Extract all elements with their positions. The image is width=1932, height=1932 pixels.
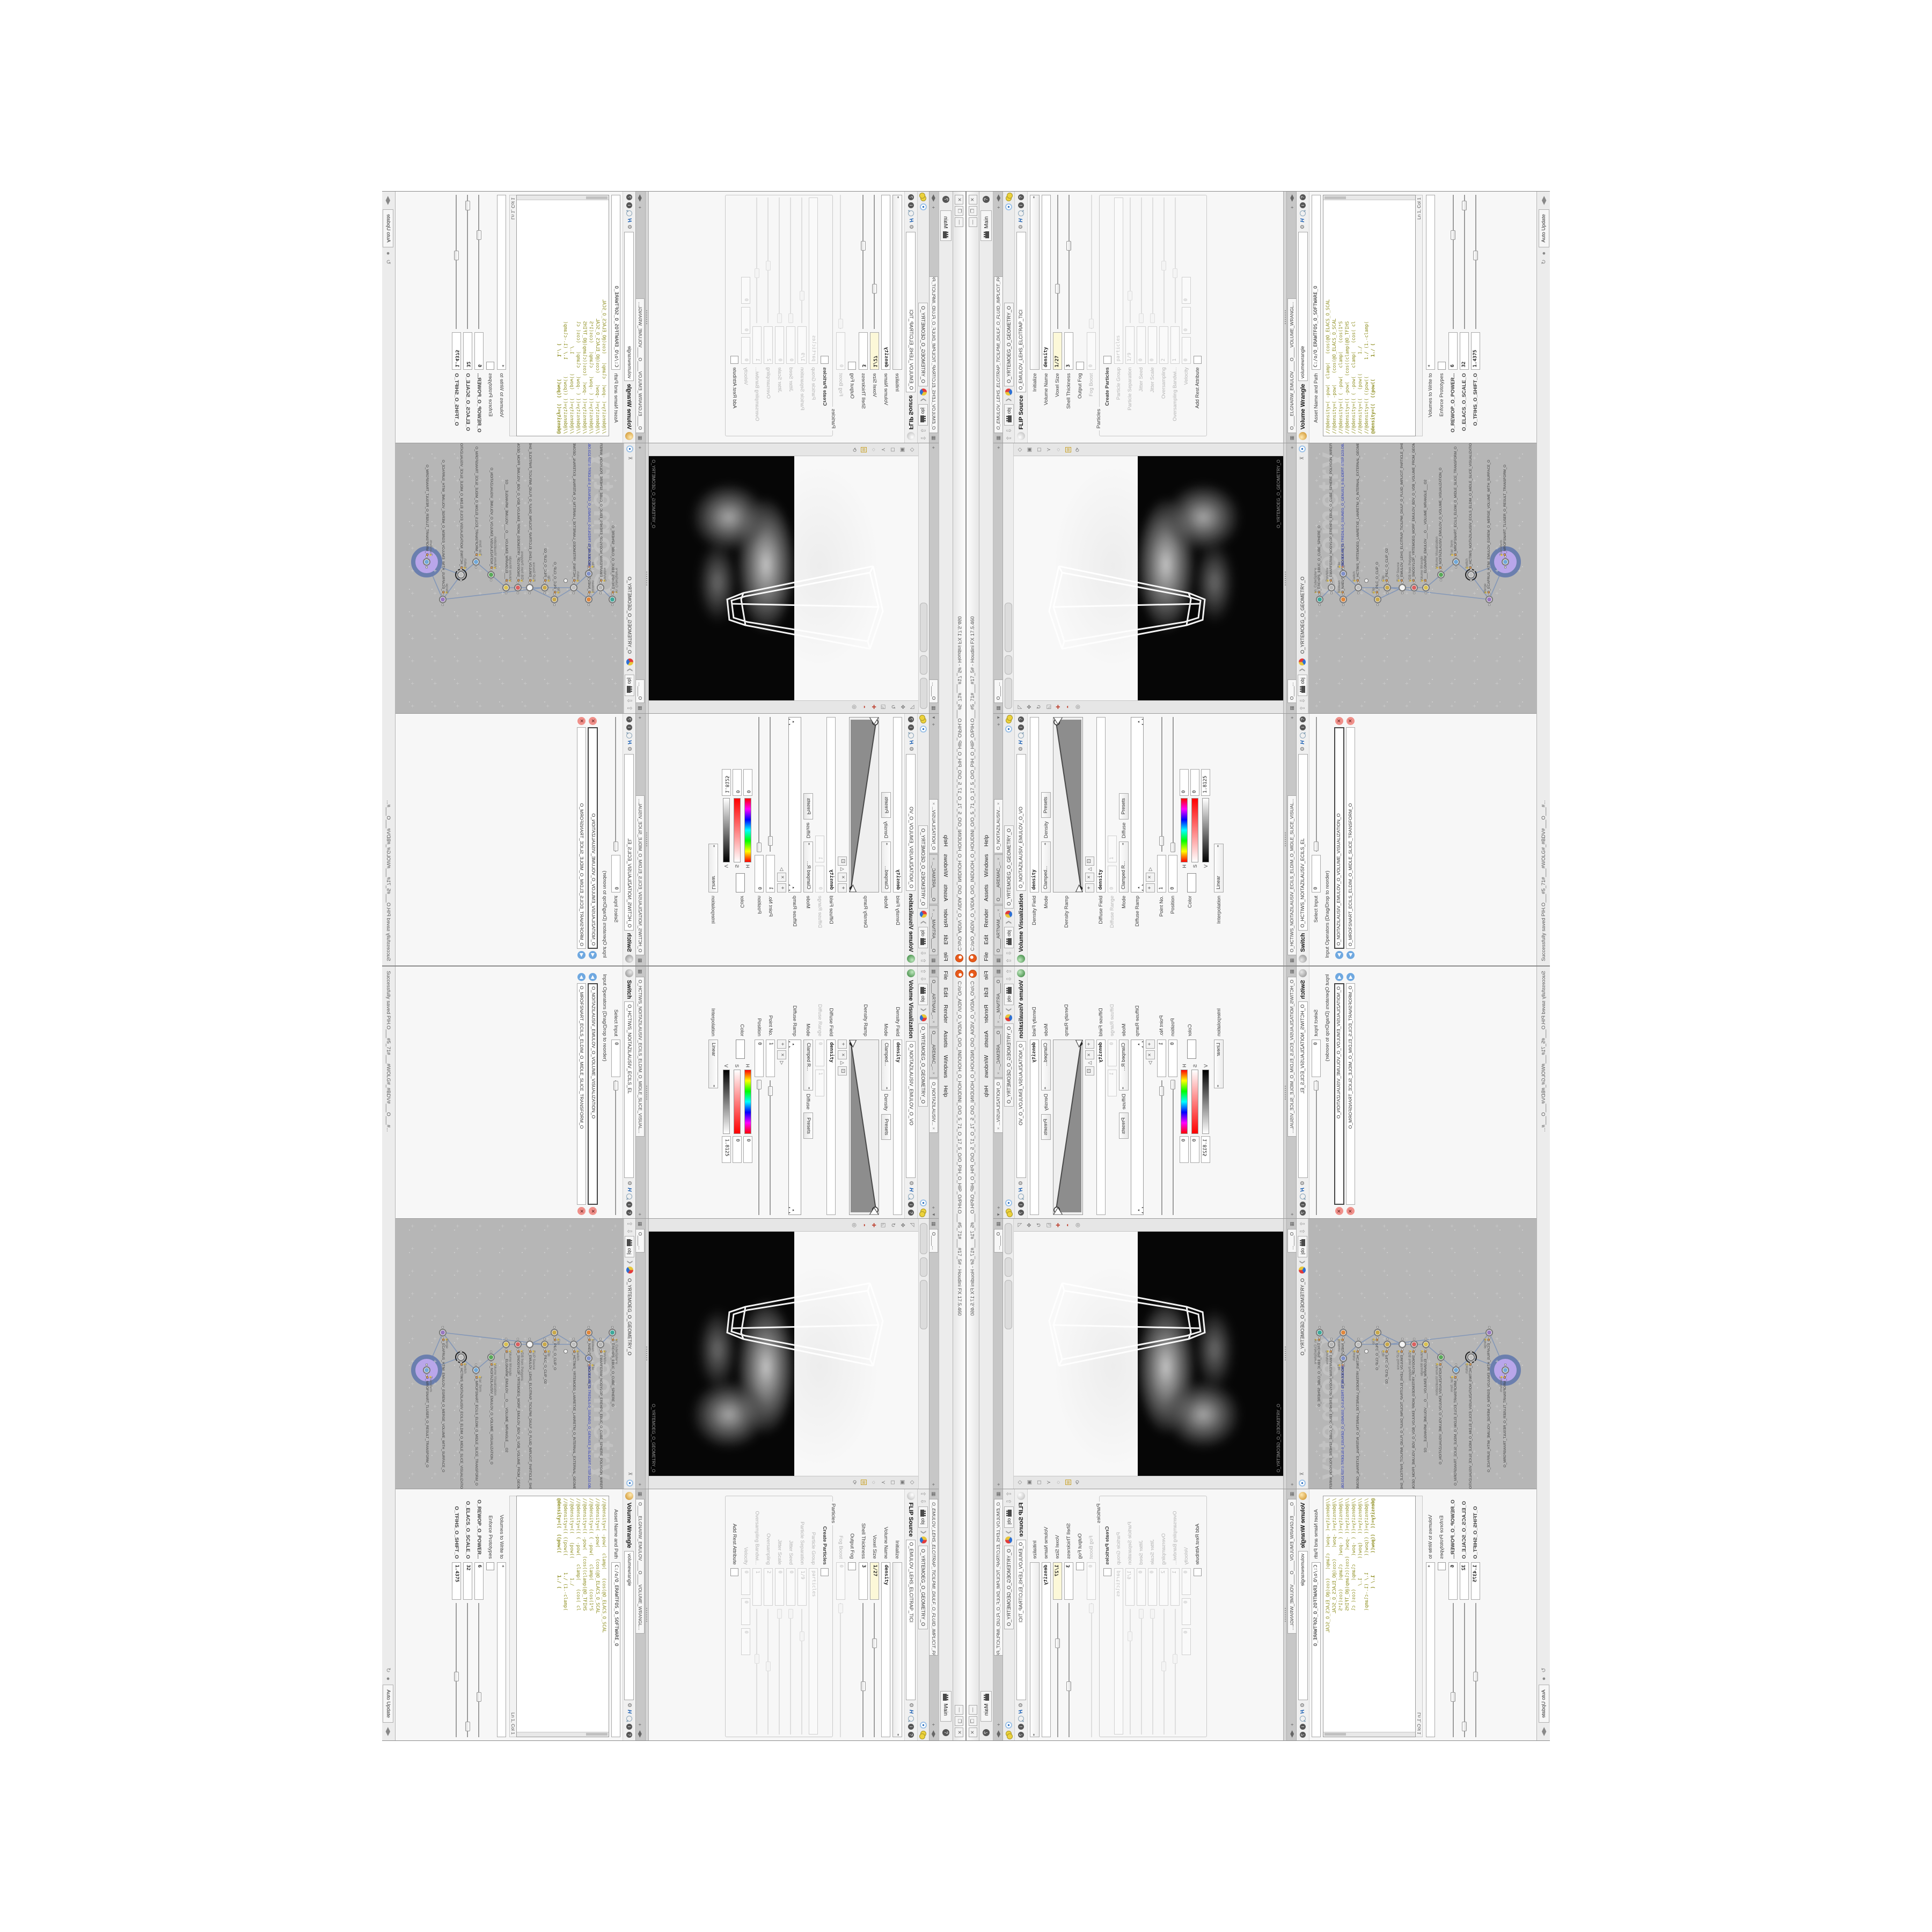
help-icon[interactable]: ? [626, 716, 632, 722]
nav-down-icon[interactable]: ⇩ [1005, 950, 1013, 956]
position-input[interactable]: 0 [1168, 855, 1177, 892]
scale-input[interactable]: 32 [1460, 332, 1469, 370]
delete-row-icon[interactable]: ✕ [577, 717, 586, 725]
diffuse-ramp-add-button[interactable]: + [777, 1040, 786, 1049]
info-icon[interactable]: i [908, 724, 914, 730]
move-tool-icon[interactable]: ✥ [899, 1223, 905, 1227]
hue-input[interactable]: 0 [743, 769, 752, 796]
pane-pin-icon[interactable]: + [930, 204, 938, 210]
diffuse-mode-dropdown[interactable]: Clamped R... [1119, 841, 1129, 892]
shell-thickness-slider[interactable] [861, 1603, 866, 1737]
scale-tool-icon[interactable]: ◱ [880, 704, 886, 709]
pane-split-icon[interactable]: ▦ [994, 1490, 1002, 1498]
help-badge-icon[interactable]: ? [983, 1729, 990, 1736]
flip-name-field[interactable]: O_EMULOV_LEHS_ELCITRAP_TICI [1016, 232, 1026, 392]
input-operator-field[interactable]: O_NOITAZILAUSIV_EMULOV_O_VOLUME_VISUALIZ… [588, 727, 598, 949]
help-icon[interactable]: ? [908, 1210, 914, 1216]
switch-name-field[interactable]: O_HCTIWS_NOITAZILAUSIV_ECILS_EL [1298, 754, 1308, 931]
window-titlebar[interactable]: C:/o/O_AIDIV_O_VIDIA_O/O_INIDUOH_O_HOUDI… [953, 967, 965, 1740]
network-path-chip[interactable]: O_YRTEMOEG_O_GEOMETRY_O [1298, 1276, 1307, 1358]
interpolation-dropdown[interactable]: Linear [708, 1040, 718, 1088]
network-node-transform[interactable]: TransformO_MROFSNART_ECILS_ELDIM_O_MIDLE… [1452, 1366, 1460, 1374]
diffuse-range-max[interactable]: 1 [815, 1070, 824, 1096]
node-flag-left[interactable] [1470, 579, 1472, 581]
network-path-chip[interactable]: O_YRTEMOEG_O_GEOMETRY_O [626, 1276, 634, 1358]
pane-pin-icon[interactable]: + [1288, 204, 1296, 210]
info-icon[interactable]: i [1300, 202, 1306, 208]
position-input[interactable]: 0 [1168, 1040, 1177, 1077]
follow-selection-icon[interactable] [1299, 1480, 1306, 1487]
node-flag-left[interactable] [553, 1326, 555, 1328]
density-field-input[interactable]: density [1030, 1040, 1039, 1215]
pane-split-icon[interactable]: ▦ [930, 704, 938, 712]
shift-input[interactable]: 1.4375 [1471, 1562, 1480, 1600]
node-flag-left[interactable] [1319, 1326, 1321, 1328]
pane-tab-arrows[interactable]: ◀▶ [930, 1729, 938, 1739]
diffuse-range-min[interactable]: 0 [815, 1040, 824, 1066]
minimize-button[interactable]: — [955, 1705, 964, 1715]
pane-splitter[interactable] [1283, 714, 1287, 965]
pane-splitter[interactable] [645, 192, 649, 443]
pane-tab-arrows[interactable]: ◀▶ [994, 193, 1002, 203]
point-no-slider[interactable] [768, 1080, 773, 1215]
select-input-field[interactable]: 0 [1312, 855, 1321, 892]
interpolation-dropdown[interactable]: Linear [1214, 844, 1224, 892]
diffuse-range-max[interactable]: 1 [1108, 836, 1117, 862]
hue-slider[interactable] [744, 1070, 751, 1134]
node-flag-left[interactable] [1413, 1338, 1415, 1340]
ramp-add-point-button[interactable]: + [1085, 883, 1094, 892]
density-ramp-editor[interactable] [1053, 717, 1083, 892]
hue-slider[interactable] [744, 798, 751, 862]
frame-icon[interactable]: ◻ [1036, 1480, 1042, 1484]
gear-icon[interactable]: ⚙ [1300, 1703, 1306, 1708]
wrangle-name-field[interactable]: volumewrangle [1298, 232, 1308, 381]
switch-name-field[interactable]: O_HCTIWS_NOITAZILAUSIV_ECILS_EL [625, 754, 634, 931]
menu-help[interactable]: Help [943, 835, 949, 847]
tab-scroll-arrows[interactable]: ◀▶ [385, 196, 392, 205]
gear-icon[interactable]: ⚙ [908, 1181, 914, 1185]
menu-help[interactable]: Help [943, 1086, 949, 1097]
viz-name-field[interactable]: O_NOITAZILAUSIV_EMULOV_O_VO [1016, 1041, 1026, 1178]
particle-group-input[interactable]: particles [1114, 1568, 1123, 1735]
network-canvas[interactable]: Geometry an_CubeSphereO_EREHPS_EBUC_O_CU… [1308, 1219, 1536, 1488]
code-scrollbar[interactable] [517, 1732, 609, 1737]
output-fog-checkbox[interactable] [1076, 362, 1084, 370]
network-node-transform[interactable]: TransformO_MROFSNART_TLUSER_O_RESULT_TRA… [423, 1366, 430, 1374]
rotate-tool-icon[interactable]: ↻ [890, 705, 896, 709]
particle-separation-input[interactable]: 1/9 [797, 326, 807, 364]
pane-pin-icon[interactable]: + [636, 1481, 644, 1487]
nav-down-icon[interactable]: ⇩ [1005, 428, 1013, 433]
node-flag-left[interactable] [426, 566, 428, 568]
shift-slider[interactable] [454, 195, 459, 329]
density-ramp-editor[interactable] [849, 1040, 879, 1215]
hue-input[interactable]: 0 [1180, 769, 1189, 796]
houdini-h-icon[interactable]: H [1018, 218, 1024, 222]
network-node-volume-visualization[interactable]: Volume VisualizationO_NOITAZILAUSIV_EMUL… [1437, 1353, 1445, 1361]
node-flag-left[interactable] [1440, 579, 1442, 581]
info-icon[interactable]: i [626, 1202, 632, 1207]
node-flag-left[interactable] [588, 604, 590, 606]
add-rest-checkbox[interactable] [1194, 1568, 1202, 1576]
ramp-handle-right[interactable] [789, 719, 794, 725]
node-flag-left[interactable] [553, 604, 555, 606]
geometry-path-chip[interactable]: O_YRTEMOEG_O_GEOMETRY_O [919, 303, 928, 386]
nav-up-icon[interactable]: ⇧ [1005, 958, 1013, 963]
sat-input[interactable]: 0 [1190, 1136, 1199, 1163]
shell-thickness-slider[interactable] [861, 195, 866, 329]
nav-up-icon[interactable]: ⇧ [1299, 706, 1306, 711]
select-input-slider[interactable] [613, 717, 618, 852]
scale-tool-icon[interactable]: ◱ [880, 1223, 886, 1227]
pane-pin-icon[interactable]: + [636, 1722, 644, 1728]
nav-up-icon[interactable]: ⇧ [920, 958, 927, 963]
initialize-dropdown[interactable] [1030, 1562, 1040, 1737]
network-path-chip[interactable]: O_YRTEMOEG_O_GEOMETRY_O [1298, 574, 1307, 656]
pane-tab-arrows[interactable]: ◀▶ [1288, 1729, 1296, 1739]
node-flag-left[interactable] [1455, 566, 1457, 568]
node-flag-left[interactable] [517, 1338, 519, 1340]
network-node-polywire[interactable]: PolyWireO_EMARFERIW_NOGYLOP_EREHPS_EBUC_… [597, 1341, 604, 1348]
network-node-clip[interactable]: ClipO_PILC_O_CLIP_O2 [1384, 584, 1391, 591]
pane-split-icon[interactable]: ▦ [1288, 956, 1296, 964]
ramp-add-point-button[interactable]: + [838, 1040, 847, 1049]
voxel-size-input[interactable]: 1/27 [1053, 1562, 1062, 1600]
auto-update-dropdown[interactable]: Auto Update [1539, 209, 1549, 247]
snap-magnet-icon[interactable]: ◓ [861, 1224, 867, 1227]
diffuse-presets-button[interactable]: Presets [1119, 793, 1129, 819]
viewport-toolbar-segment[interactable] [1005, 655, 1012, 675]
info-icon[interactable]: i [626, 1724, 632, 1730]
viewport-canvas[interactable]: O_YRTEMOEG_O_GEOMETRY_O [1014, 456, 1283, 700]
enforce-prototypes-checkbox[interactable] [1438, 1562, 1446, 1570]
gear-icon[interactable]: ⚙ [908, 747, 914, 751]
pane-tab-camera[interactable]: O____AREMAC_...× [994, 854, 1002, 905]
pane-split-icon[interactable]: ▦ [1288, 968, 1296, 976]
pane-tab-arrows[interactable]: ◀▶ [994, 1729, 1002, 1739]
add-rest-checkbox[interactable] [730, 1568, 738, 1576]
particle-group-input[interactable]: particles [1114, 197, 1123, 364]
pane-pin-icon[interactable]: + [994, 721, 1002, 727]
network-node-transform[interactable]: TransformO_MROFSNART_ECILS_ELDIM_O_MIDLE… [1452, 558, 1460, 566]
sat-slider[interactable] [734, 1070, 741, 1134]
frame-icon[interactable]: ◻ [890, 1480, 896, 1484]
grid-icon[interactable]: ◌ [870, 1481, 876, 1484]
menu-edit[interactable]: Edit [943, 987, 949, 997]
help-icon[interactable]: ? [1300, 716, 1306, 722]
minimize-button[interactable]: — [969, 217, 977, 227]
node-flag-left[interactable] [475, 1364, 477, 1366]
network-dot-node[interactable] [1364, 579, 1368, 583]
move-tool-icon[interactable]: ✥ [1027, 1223, 1033, 1227]
axis-icon[interactable]: ⋎ [880, 1480, 886, 1484]
gear-icon[interactable]: ⚙ [626, 224, 632, 229]
houdini-h-icon[interactable]: H [1018, 1188, 1024, 1191]
network-pin-icon[interactable]: ⊼ [626, 455, 634, 462]
diffuse-range-min[interactable]: 0 [1108, 866, 1117, 892]
search-icon[interactable] [1018, 733, 1024, 738]
initialize-dropdown[interactable] [1030, 195, 1040, 370]
fog-boost-input[interactable]: 0 [1087, 1562, 1096, 1600]
info-icon[interactable]: i [1018, 202, 1024, 208]
link-balls-icon[interactable] [1006, 716, 1012, 723]
viewport-toolbar-segment[interactable] [1005, 603, 1012, 652]
nav-up-icon[interactable]: ⇧ [920, 969, 927, 974]
menu-help[interactable]: Help [983, 835, 990, 847]
help-badge-icon[interactable]: ? [983, 196, 990, 203]
point-no-input[interactable]: 1 [766, 1040, 775, 1077]
frame-icon[interactable]: ◻ [890, 448, 896, 452]
network-node-clip[interactable]: ClipO_PILC_O_CLIP_O2 [1384, 1341, 1391, 1348]
refresh-icon[interactable]: ↻ [1540, 259, 1547, 264]
node-flag-left[interactable] [1342, 1326, 1344, 1328]
ramp-handle-left[interactable] [789, 1041, 794, 1048]
input-operator-field[interactable]: O_NOITAZILAUSIV_EMULOV_O_VOLUME_VISUALIZ… [588, 983, 598, 1205]
viewport-toolbar-segment[interactable] [920, 1223, 928, 1254]
camera-icon[interactable]: ▣ [1027, 447, 1033, 452]
help-icon[interactable]: ? [1018, 1732, 1024, 1738]
pane-pin-icon[interactable]: + [1288, 444, 1296, 450]
nav-down-icon[interactable]: ⇩ [1005, 1499, 1013, 1504]
pane-split-icon[interactable]: ▦ [994, 1220, 1002, 1228]
point-no-slider[interactable] [1159, 717, 1164, 852]
scale-slider[interactable] [465, 1603, 470, 1737]
pane-tab-arrows[interactable]: ◀▶ [1288, 193, 1296, 203]
diffuse-ramp-add-button[interactable]: + [1146, 883, 1155, 892]
pane-splitter[interactable] [645, 1219, 649, 1488]
scale-input[interactable]: 32 [1460, 1562, 1469, 1600]
pane-tab-viewport[interactable]: O____... [930, 1229, 938, 1253]
velocity-y-input[interactable]: 0 [741, 1598, 750, 1625]
output-fog-checkbox[interactable] [848, 1562, 856, 1570]
nav-up-icon[interactable]: ⇧ [920, 1491, 927, 1497]
pane-pin-icon[interactable]: + [636, 444, 644, 450]
fog-boost-input[interactable]: 0 [836, 1562, 845, 1600]
jitter-seed-slider[interactable] [1139, 1609, 1144, 1735]
nav-down-icon[interactable]: ⇩ [626, 698, 634, 704]
network-node-vdb-from-polygons[interactable]: VDB from PolygonsO_SNOGYLOP_YRTEMOEG_MOR… [514, 584, 522, 591]
scale-input[interactable]: 32 [463, 1562, 472, 1600]
pane-tab-flip[interactable]: O_EMULOV_LEHS_ELCITRAP_TICILPMI_DIULF_O_… [930, 276, 938, 433]
nav-down-icon[interactable]: ⇩ [1299, 1228, 1306, 1234]
help-icon[interactable]: ? [908, 716, 914, 722]
pane-split-icon[interactable]: ▦ [930, 1490, 938, 1498]
view-pin-icon[interactable]: ◇ [1017, 1480, 1023, 1484]
power-slider[interactable] [477, 195, 481, 329]
viewport-canvas[interactable]: O_YRTEMOEG_O_GEOMETRY_O [649, 1232, 918, 1475]
code-scrollbar[interactable] [1323, 1732, 1415, 1737]
menu-edit[interactable]: Edit [983, 987, 990, 997]
obj-breadcrumb[interactable]: obj [919, 984, 928, 1005]
node-flag-left[interactable] [442, 1326, 444, 1328]
search-icon[interactable] [1300, 1716, 1306, 1722]
scale-slider[interactable] [1462, 1603, 1467, 1737]
density-field-input[interactable]: density [893, 717, 902, 892]
reorder-arrow-icon[interactable]: ◀ [1346, 951, 1355, 959]
interpolation-dropdown[interactable]: Linear [708, 844, 718, 892]
velocity-z-input[interactable]: 0 [1182, 1628, 1191, 1655]
density-field-input[interactable]: density [1030, 717, 1039, 892]
density-presets-button[interactable]: Presets [881, 792, 891, 818]
desktop-selector[interactable]: Main [980, 210, 992, 241]
nav-up-icon[interactable]: ⇧ [1005, 435, 1013, 441]
nav-up-icon[interactable]: ⇧ [1299, 1221, 1306, 1226]
node-flag-left[interactable] [490, 1351, 492, 1353]
pane-splitter[interactable] [1283, 443, 1287, 713]
menu-windows[interactable]: Windows [983, 1055, 990, 1078]
nav-down-icon[interactable]: ⇩ [920, 976, 927, 982]
pane-tab-switch[interactable]: O_HCTIWS_NOITAZILAUSIV_ECILS_ELDIM_O_MID… [1287, 977, 1296, 1137]
follow-selection-icon[interactable] [920, 1199, 927, 1206]
pane-splitter[interactable] [645, 1489, 649, 1740]
nav-up-icon[interactable]: ⇧ [626, 1221, 634, 1226]
menu-edit[interactable]: Edit [943, 935, 949, 945]
pane-pin-icon[interactable]: + [636, 204, 644, 210]
nav-down-icon[interactable]: ⇩ [626, 1228, 634, 1234]
network-node-volume-wrangle[interactable]: Volume WrangleO___ELGNARW_EMULOV___O___V… [502, 1341, 510, 1348]
rotate-tool-icon[interactable]: ↻ [1036, 705, 1042, 709]
pane-split-icon[interactable]: ▦ [636, 1220, 644, 1228]
initialize-dropdown[interactable] [892, 1562, 902, 1737]
camera-icon[interactable]: ▣ [899, 447, 905, 452]
houdini-h-icon[interactable]: H [908, 1188, 914, 1191]
hue-input[interactable]: 0 [743, 1136, 752, 1163]
desktop-selector[interactable]: Main [980, 1691, 992, 1722]
mode-dropdown[interactable]: Clamped... [1041, 1040, 1051, 1091]
network-pin-icon[interactable]: ⊼ [1298, 455, 1306, 462]
shell-thickness-input[interactable]: 3 [859, 332, 868, 370]
sat-input[interactable]: 0 [733, 769, 742, 796]
menu-render[interactable]: Render [983, 1005, 990, 1023]
diffuse-ramp-editor[interactable] [788, 717, 801, 892]
scale-tool-icon[interactable]: ◱ [1046, 1223, 1052, 1227]
pane-pin-icon[interactable]: + [994, 444, 1002, 450]
node-flag-left[interactable] [1377, 1326, 1379, 1328]
power-input[interactable]: 6 [1448, 332, 1458, 370]
shift-slider[interactable] [1473, 1603, 1478, 1737]
viz-name-field[interactable]: O_NOITAZILAUSIV_EMULOV_O_VO [906, 1041, 916, 1178]
diffuse-ramp-editor[interactable] [1131, 1040, 1144, 1215]
network-node-an-cubesphere[interactable]: an_CubeSphereO_EREHPS_EBUC_O_CUBE_SPHERE… [609, 596, 616, 603]
oversampling-bandwidth-input[interactable]: 1 [1170, 326, 1180, 364]
enforce-prototypes-checkbox[interactable] [486, 1562, 494, 1570]
houdini-h-icon[interactable]: H [1300, 1188, 1306, 1191]
shell-thickness-input[interactable]: 3 [1064, 1562, 1073, 1600]
particle-separation-slider[interactable] [800, 197, 804, 323]
pane-tab-camera[interactable]: O____AREMAC_...× [930, 854, 938, 905]
viewport-toolbar-segment[interactable] [1005, 1257, 1012, 1277]
network-node-boolean[interactable]: BooleanO_NAELOOB_O_BOOLEAN_O [1340, 1329, 1347, 1336]
pane-split-icon[interactable]: ▦ [994, 956, 1002, 964]
auto-update-dropdown[interactable]: Auto Update [383, 1685, 394, 1723]
orbit-icon[interactable]: ⟳ [1075, 448, 1081, 452]
maximize-button[interactable]: ❐ [969, 206, 977, 216]
oversampling-input[interactable]: 2 [1159, 326, 1168, 364]
network-node-volume-visualization[interactable]: Volume VisualizationO_NOITAZILAUSIV_EMUL… [1437, 571, 1445, 579]
delete-row-icon[interactable]: ✕ [1346, 1207, 1355, 1215]
search-icon[interactable] [626, 210, 632, 216]
vex-code-editor[interactable]: //@density=( -pow( clamp( (cos(@O_ELACS_… [516, 195, 609, 436]
select-tool-icon[interactable]: ◸ [1017, 705, 1023, 709]
info-icon[interactable]: i [1300, 724, 1306, 730]
pane-split-icon[interactable]: ▦ [930, 956, 938, 964]
diffuse-mode-dropdown[interactable]: Clamped R... [803, 841, 813, 892]
follow-selection-icon[interactable] [1005, 1722, 1012, 1729]
network-node-vdb-from-polygons[interactable]: VDB from PolygonsO_SNOGYLOP_YRTEMOEG_MOR… [1410, 584, 1418, 591]
sat-slider[interactable] [1191, 1070, 1198, 1134]
asset-name-path-input[interactable]: C:/o/O_ERAWTFOS_O_SOFTWARE_O [1312, 1562, 1321, 1737]
move-tool-icon[interactable]: ✥ [899, 705, 905, 709]
pane-pin-icon[interactable]: + [1288, 1722, 1296, 1728]
point-no-input[interactable]: 1 [1157, 1040, 1166, 1077]
node-flag-left[interactable] [490, 579, 492, 581]
network-node-merge[interactable]: MergeO_ECAFRUS_HTIW_EMULOV_EGREM_O_MERGE… [1485, 1329, 1493, 1336]
link-balls-icon[interactable] [920, 1209, 926, 1216]
vex-code-editor[interactable]: //@density=( -pow( clamp( (cos(@O_ELACS_… [1323, 1496, 1416, 1737]
gear-icon[interactable]: ⚙ [626, 747, 632, 751]
pane-split-icon[interactable]: ▦ [636, 956, 644, 964]
node-flag-left[interactable] [1319, 604, 1321, 606]
pane-tab-flip[interactable]: O_EMULOV_LEHS_ELCITRAP_TICILPMI_DIULF_O_… [930, 1499, 938, 1656]
create-particles-checkbox[interactable] [1103, 1568, 1111, 1576]
cook-sphere-icon[interactable]: ● [385, 252, 392, 255]
reorder-arrow-icon[interactable]: ◀ [1346, 973, 1355, 981]
create-particles-checkbox[interactable] [821, 1568, 829, 1576]
info-icon[interactable]: i [626, 202, 632, 208]
sat-slider[interactable] [1191, 798, 1198, 862]
cook-sphere-icon[interactable]: ● [1541, 1677, 1547, 1681]
oversampling-bandwidth-slider[interactable] [755, 1609, 759, 1735]
help-icon[interactable]: ? [908, 194, 914, 200]
node-flag-left[interactable] [1504, 566, 1506, 568]
diffuse-ramp-delete-button[interactable]: × [1146, 1050, 1155, 1059]
pane-tab-mantra[interactable]: O____ARTNAM_...× [994, 905, 1002, 955]
network-node-volume-wrangle[interactable]: Volume WrangleO___ELGNARW_EMULOV___O___V… [1422, 584, 1430, 591]
node-flag-left[interactable] [599, 1338, 602, 1340]
pane-pin-icon[interactable]: + [1288, 1481, 1296, 1487]
gear-icon[interactable]: ⚙ [626, 1181, 632, 1185]
window-titlebar[interactable]: C:/o/O_AIDIV_O_VIDIA_O/O_INIDUOH_O_HOUDI… [953, 192, 965, 965]
houdini-h-icon[interactable]: H [908, 218, 914, 222]
rotate-tool-icon[interactable]: ↻ [890, 1223, 896, 1227]
grid-icon[interactable]: ◌ [1056, 448, 1062, 451]
sat-input[interactable]: 0 [1190, 769, 1199, 796]
flip-name-field[interactable]: O_EMULOV_LEHS_ELCITRAP_TICI [906, 1540, 916, 1700]
geometry-path-chip[interactable]: O_YRTEMOEG_O_GEOMETRY_O [1004, 1546, 1014, 1629]
menu-help[interactable]: Help [983, 1086, 990, 1097]
power-input[interactable]: 6 [474, 1562, 484, 1600]
shell-thickness-slider[interactable] [1066, 195, 1071, 329]
diffuse-ramp-delete-button[interactable]: × [777, 1050, 786, 1059]
houdini-h-icon[interactable]: H [626, 1710, 632, 1714]
pane-tab-mantra[interactable]: O____ARTNAM_...× [994, 977, 1002, 1027]
network-node-switch[interactable]: SwitchO_HCTIWS_YRTEMOEG_LANRETXE_LANRETN… [570, 584, 577, 591]
pane-split-icon[interactable]: ▦ [1288, 704, 1296, 712]
quadview-icon[interactable]: ⊞ [861, 447, 867, 453]
pane-pin-icon[interactable]: + [930, 1722, 938, 1728]
node-flag-left[interactable] [1330, 1338, 1333, 1340]
menu-render[interactable]: Render [943, 909, 949, 927]
follow-selection-icon[interactable] [1005, 1199, 1012, 1206]
velocity-z-input[interactable]: 0 [1182, 277, 1191, 304]
pane-split-icon[interactable]: ▦ [636, 1490, 644, 1498]
oversampling-bandwidth-input[interactable]: 1 [752, 1568, 762, 1606]
delete-row-icon[interactable]: ✕ [577, 1207, 586, 1215]
view-tool-icon[interactable]: ◎ [851, 1223, 857, 1227]
input-operator-field[interactable]: O_NOITAZILAUSIV_EMULOV_O_VOLUME_VISUALIZ… [1334, 727, 1344, 949]
ramp-delete-point-button[interactable]: × [1085, 1050, 1094, 1059]
